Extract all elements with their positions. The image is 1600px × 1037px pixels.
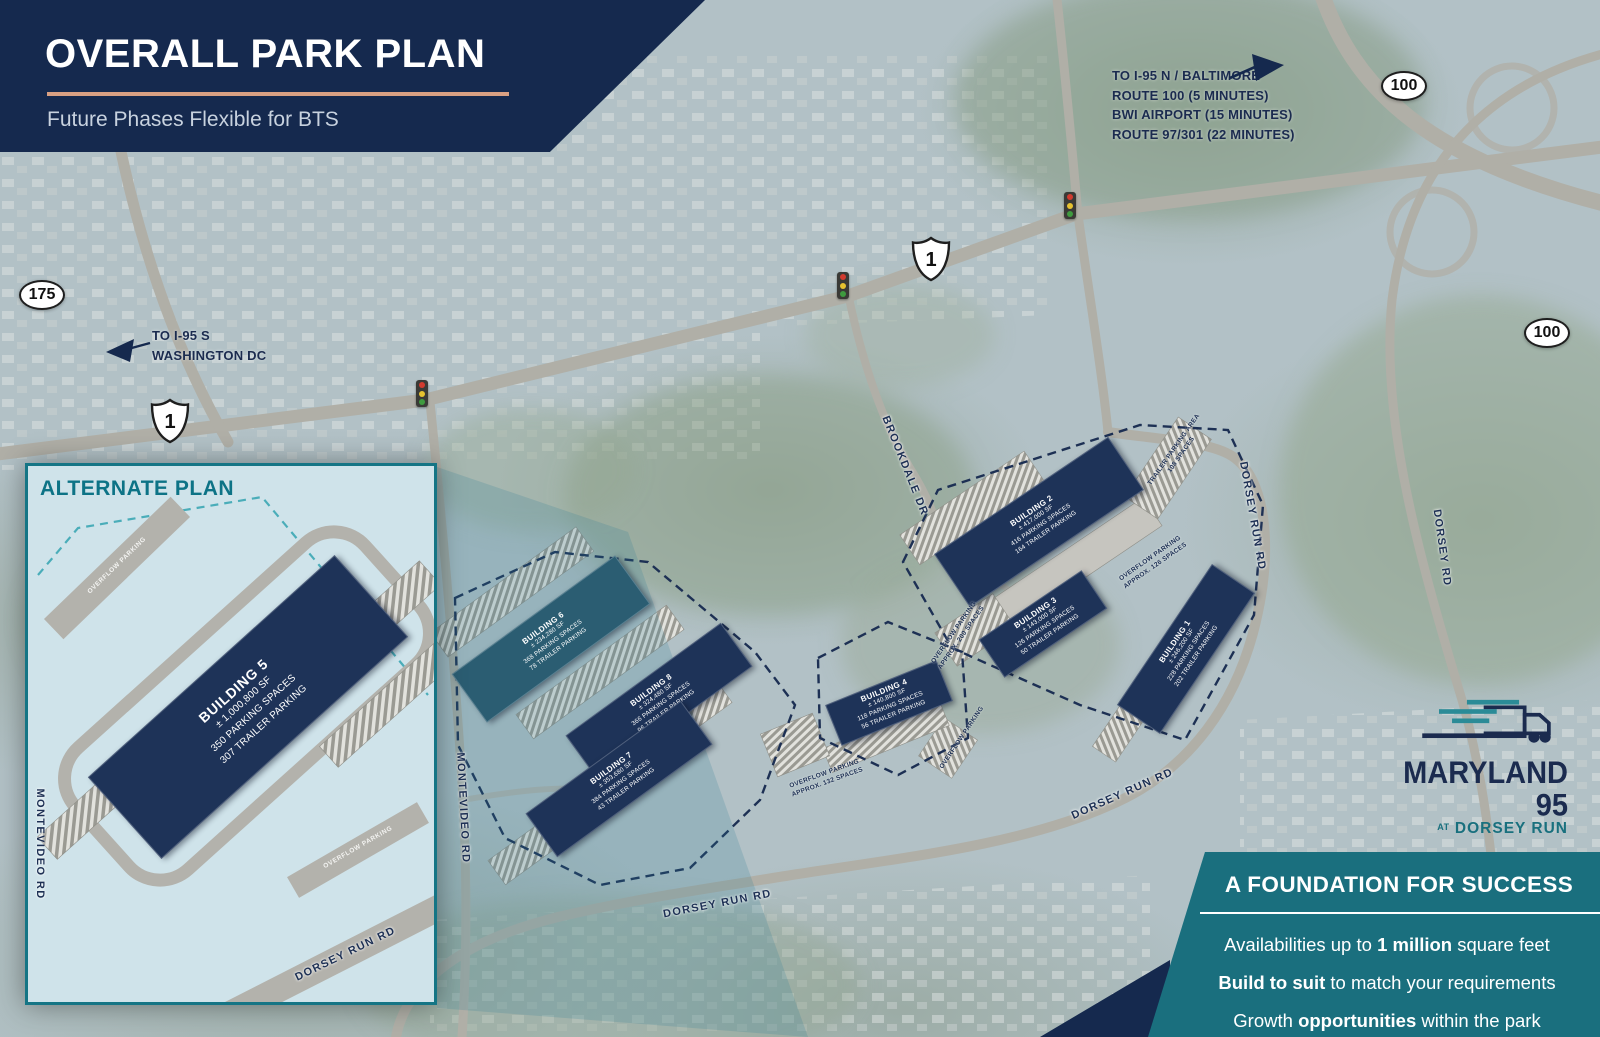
directions-northeast: TO I-95 N / BALTIMORE ROUTE 100 (5 MINUT…	[1112, 66, 1342, 144]
traffic-light-icon	[416, 380, 428, 407]
svg-text:1: 1	[164, 411, 175, 433]
arrow-northeast-icon	[1228, 50, 1286, 86]
page-title: OVERALL PARK PLAN	[45, 32, 485, 77]
us1-shield-top: 1	[911, 236, 951, 282]
maryland95-logo: MARYLAND 95 AT DORSEY RUN	[1372, 698, 1568, 838]
svg-text:1: 1	[925, 249, 936, 271]
truck-icon	[1418, 698, 1568, 752]
footer-underline	[1200, 912, 1600, 914]
footer-title: A FOUNDATION FOR SUCCESS	[1214, 872, 1584, 898]
arrow-southwest-icon	[104, 336, 152, 364]
footer-panel: A FOUNDATION FOR SUCCESS Availabilities …	[1148, 852, 1600, 1037]
footer-lines: Availabilities up to 1 million square fe…	[1188, 926, 1586, 1037]
us1-shield-left: 1	[150, 398, 190, 444]
footer-line-3: Growth opportunities within the park	[1188, 1002, 1586, 1037]
logo-name: MARYLAND 95	[1372, 757, 1568, 823]
inset-road-label-montevideo-rd: MONTEVIDEO RD	[34, 774, 46, 914]
footer-line-1: Availabilities up to 1 million square fe…	[1188, 926, 1586, 964]
alternate-plan-title: ALTERNATE PLAN	[40, 477, 234, 501]
route-shield-100-right: 100	[1524, 318, 1570, 348]
page-subtitle: Future Phases Flexible for BTS	[47, 108, 339, 132]
traffic-light-icon	[1064, 192, 1076, 219]
route-shield-175: 175	[19, 280, 65, 310]
park-plan-page: BUILDING 6 ± 234,280 SF 368 PARKING SPAC…	[0, 0, 1600, 1037]
traffic-light-icon	[837, 272, 849, 299]
title-underline	[47, 92, 509, 96]
route-shield-100-top: 100	[1381, 71, 1427, 101]
footer-line-2: Build to suit to match your requirements	[1188, 964, 1586, 1002]
directions-southwest: TO I-95 S WASHINGTON DC	[152, 326, 312, 365]
